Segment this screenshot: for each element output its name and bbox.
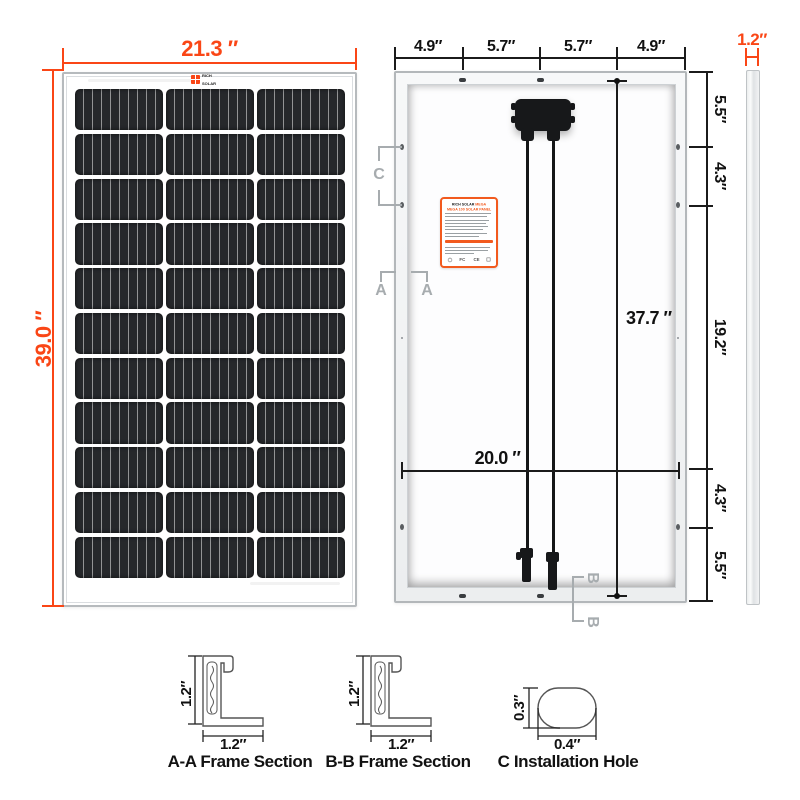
dim-tick <box>689 205 713 207</box>
brand-logo-text: RICH SOLAR <box>202 72 230 88</box>
brand-logo-icon <box>191 75 200 84</box>
sticker-brand-text: RICH SOLAR <box>452 202 474 206</box>
spec-text-line <box>445 226 488 227</box>
dim-tick <box>689 71 713 73</box>
solar-cell <box>75 223 163 264</box>
back-top-dim-2: 5.7″ <box>473 38 529 56</box>
solar-cell <box>166 313 254 354</box>
back-top-dim-1: 4.9″ <box>400 38 456 56</box>
frame-glare <box>88 79 198 82</box>
solar-cell <box>166 358 254 399</box>
dim-tick <box>462 47 464 70</box>
spec-label-title: MEGA 100 SOLAR PANEL <box>445 207 493 212</box>
mount-hole <box>676 202 680 208</box>
solar-cell <box>166 134 254 175</box>
mount-slot <box>459 78 466 82</box>
fcc-mark: FC <box>459 257 465 262</box>
c-width-label: 0.4″ <box>554 736 580 750</box>
section-marker-a: A <box>419 282 435 300</box>
section-marker-b: B <box>583 570 601 586</box>
back-top-dim-4: 4.9″ <box>623 38 679 56</box>
dim-tick <box>689 600 713 602</box>
solar-cell <box>257 179 345 220</box>
solar-cell <box>166 447 254 488</box>
spec-text-line <box>445 250 488 251</box>
solar-cell <box>166 223 254 264</box>
certification-marks: FC CE <box>445 255 493 264</box>
brand-line1: RICH <box>202 74 216 78</box>
junction-box <box>515 99 571 131</box>
sticker-model-text: MEGA <box>475 202 486 206</box>
back-right-dim-3: 19.2″ <box>710 317 728 357</box>
bb-height-label: 1.2″ <box>346 681 363 707</box>
solar-cell <box>257 358 345 399</box>
dim-line-inner-width <box>402 470 679 472</box>
mc4-connector <box>522 556 531 582</box>
solar-cell <box>75 402 163 443</box>
spec-text-line <box>445 253 474 254</box>
solar-cell <box>166 268 254 309</box>
solar-cell <box>257 447 345 488</box>
brand-line2: SOLAR <box>202 82 216 86</box>
spec-label-brand: RICH SOLAR MEGA <box>445 201 493 207</box>
back-right-dim-4: 4.3″ <box>710 478 728 518</box>
bb-section-title: B-B Frame Section <box>323 752 473 772</box>
dim-tick <box>42 69 64 71</box>
bb-frame-section-drawing: 1.2″ 1.2″ <box>343 650 473 750</box>
spec-text-line <box>445 223 486 224</box>
mount-hole <box>676 524 680 530</box>
marker-line <box>572 576 574 622</box>
cert-mark-icon <box>486 258 490 262</box>
marker-line <box>378 146 402 148</box>
side-thickness-label: 1.2″ <box>732 30 772 50</box>
solar-cell <box>166 89 254 130</box>
spec-warning-band <box>445 240 493 243</box>
etl-mark-icon <box>448 257 452 261</box>
solar-cell <box>75 492 163 533</box>
back-top-dim-3: 5.7″ <box>550 38 606 56</box>
solar-cell <box>257 402 345 443</box>
dim-dot <box>614 78 620 84</box>
solar-cell <box>257 313 345 354</box>
spec-text-line <box>445 247 490 248</box>
spec-text-line <box>445 236 479 237</box>
solar-cell <box>257 492 345 533</box>
mc4-connector <box>548 560 557 590</box>
section-marker-a: A <box>373 282 389 300</box>
dim-tick <box>539 47 541 70</box>
dim-dot <box>614 593 620 599</box>
installation-hole-shape <box>538 688 596 728</box>
solar-cell <box>257 223 345 264</box>
solar-cell <box>257 268 345 309</box>
aa-width-label: 1.2″ <box>220 736 246 750</box>
solar-cell <box>257 89 345 130</box>
solar-cell <box>257 537 345 578</box>
bb-width-label: 1.2″ <box>388 736 414 750</box>
ce-mark: CE <box>473 257 479 262</box>
marker-line <box>378 190 380 205</box>
section-marker-b: B <box>583 614 601 630</box>
dim-line-front-width <box>62 62 357 64</box>
marker-line <box>378 146 380 161</box>
drain-hole <box>401 337 403 339</box>
mount-hole <box>676 144 680 150</box>
dim-tick <box>394 47 396 70</box>
aa-frame-section-drawing: 1.2″ 1.2″ <box>175 650 305 750</box>
section-marker-c: C <box>371 166 387 184</box>
aa-section-title: A-A Frame Section <box>165 752 315 772</box>
dim-tick <box>42 605 64 607</box>
c-section-title: C Installation Hole <box>488 752 648 772</box>
spec-text-line <box>445 220 489 221</box>
solar-cable-negative <box>526 140 529 552</box>
marker-line <box>426 271 428 282</box>
solar-cell <box>75 268 163 309</box>
back-right-dim-1: 5.5″ <box>710 89 728 129</box>
spec-text-line <box>445 233 487 234</box>
mount-hole <box>400 524 404 530</box>
solar-cell <box>75 537 163 578</box>
solar-cell <box>75 134 163 175</box>
dim-line-inner-height <box>616 81 618 597</box>
mount-slot <box>537 594 544 598</box>
spec-text-line <box>445 213 491 214</box>
c-installation-hole-drawing: 0.3″ 0.4″ <box>505 650 635 750</box>
aa-height-label: 1.2″ <box>178 681 195 707</box>
sticker-title-text: MEGA 100 SOLAR PANEL <box>447 207 491 211</box>
c-height-label: 0.3″ <box>511 695 528 721</box>
front-height-label: 39.0 ″ <box>31 309 57 369</box>
solar-panel-dimension-diagram: RICH SOLAR 21.3 ″ 39.0 ″ RICH SOLAR <box>0 0 800 800</box>
frame-glare <box>250 582 340 585</box>
dim-tick <box>689 527 713 529</box>
mc4-latch <box>516 552 521 560</box>
solar-cell <box>166 179 254 220</box>
mount-slot <box>537 78 544 82</box>
back-panel-sheet <box>407 84 676 588</box>
marker-line <box>411 271 427 273</box>
inner-height-label: 37.7 ″ <box>626 308 686 329</box>
spec-label: RICH SOLAR MEGA MEGA 100 SOLAR PANEL FC … <box>440 197 498 268</box>
dim-line-back-right <box>706 71 708 602</box>
front-cell-grid <box>75 89 345 578</box>
solar-cell <box>75 358 163 399</box>
spec-text-line <box>445 216 487 217</box>
marker-line <box>380 271 396 273</box>
solar-cell <box>75 447 163 488</box>
back-right-dim-2: 4.3″ <box>710 156 728 196</box>
dim-tick <box>616 47 618 70</box>
solar-cable-positive <box>552 140 555 556</box>
dim-line-side-thickness <box>745 56 759 58</box>
dim-tick <box>684 47 686 70</box>
solar-cell <box>166 492 254 533</box>
mount-slot <box>459 594 466 598</box>
solar-cell <box>166 537 254 578</box>
back-right-dim-5: 5.5″ <box>710 545 728 585</box>
solar-cell <box>75 313 163 354</box>
dim-tick <box>689 146 713 148</box>
front-width-label: 21.3 ″ <box>62 36 357 62</box>
solar-cell <box>75 179 163 220</box>
solar-cell <box>257 134 345 175</box>
inner-width-label: 20.0 ″ <box>460 448 535 469</box>
dim-tick <box>678 462 680 479</box>
side-profile <box>746 70 760 605</box>
marker-line <box>378 204 402 206</box>
dim-tick <box>689 468 713 470</box>
solar-cell <box>166 402 254 443</box>
drain-hole <box>677 337 679 339</box>
solar-cell <box>75 89 163 130</box>
marker-line <box>380 271 382 282</box>
brand-logo: RICH SOLAR <box>191 74 230 85</box>
dim-tick <box>401 462 403 479</box>
spec-text-line <box>445 229 483 230</box>
